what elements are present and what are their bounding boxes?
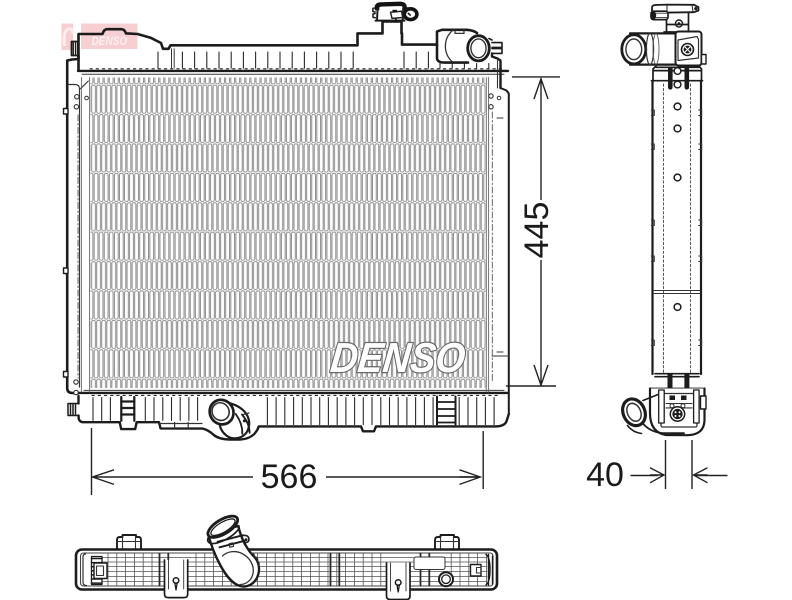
svg-text:445: 445 <box>518 202 556 259</box>
svg-text:566: 566 <box>261 458 318 496</box>
svg-text:40: 40 <box>586 456 624 494</box>
svg-text:DENSO: DENSO <box>328 335 467 381</box>
svg-text:DENSO: DENSO <box>92 35 128 48</box>
